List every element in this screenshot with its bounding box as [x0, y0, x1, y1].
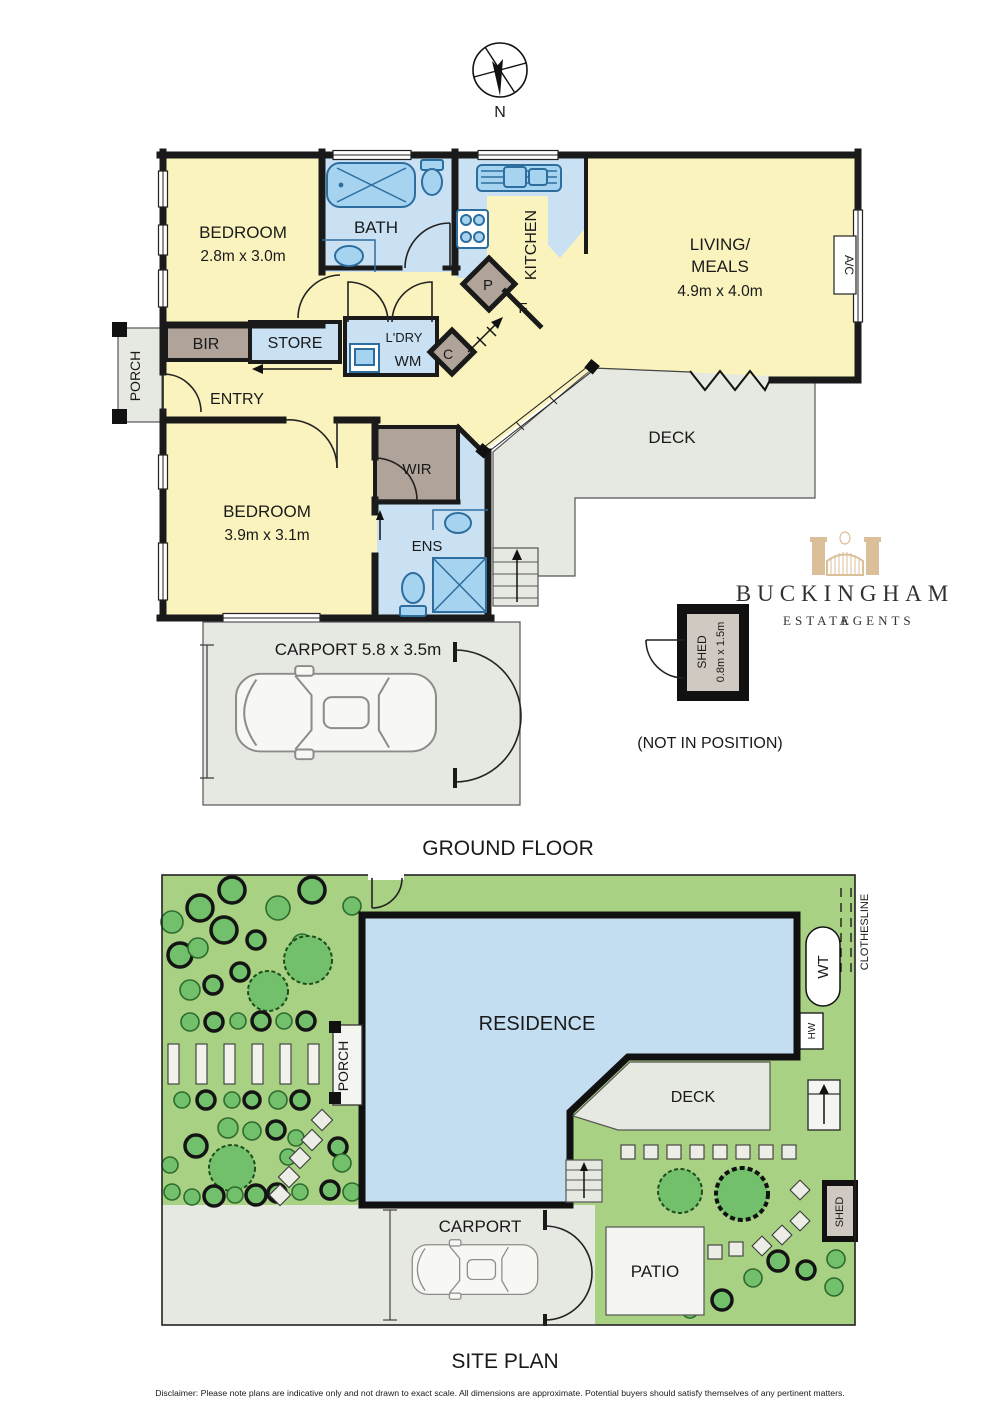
bir-label: BIR [193, 336, 220, 353]
hot-water-unit: HW [800, 1013, 823, 1049]
living-dims: 4.9m x 4.0m [677, 283, 762, 300]
compass-needle [492, 59, 503, 96]
wm-label: WM [395, 353, 422, 370]
patio-label: PATIO [631, 1262, 680, 1281]
washing-machine [350, 344, 379, 372]
shed-ground-label: SHED [695, 635, 709, 669]
kitchen-sink [477, 165, 561, 191]
deck-stairs [493, 548, 538, 606]
carport-ground-label: CARPORT 5.8 x 3.5m [275, 640, 442, 659]
floorplan-page: N PORCH [0, 0, 1000, 1415]
ac-unit: A/C [834, 236, 856, 294]
hw-label: HW [807, 1022, 818, 1039]
carport-ground: CARPORT 5.8 x 3.5m [200, 622, 521, 805]
shed-ground-dims: 0.8m x 1.5m [715, 622, 727, 683]
ac-label: A/C [842, 255, 856, 275]
pantry-label: P [483, 277, 493, 294]
water-tank: WT [806, 927, 840, 1006]
ground-floor-title: GROUND FLOOR [422, 837, 594, 860]
ground-floor-plan: PORCH [112, 151, 954, 861]
deck-site-label: DECK [671, 1089, 716, 1106]
shed-site: SHED [822, 1180, 858, 1242]
shed-site-label: SHED [834, 1197, 846, 1228]
porch-site-label: PORCH [335, 1041, 351, 1092]
clothesline-label: CLOTHESLINE [859, 894, 871, 970]
cupboard-label: C [443, 346, 453, 362]
kitchen-label: KITCHEN [523, 210, 540, 280]
bathtub [327, 163, 415, 207]
patio: PATIO [606, 1227, 704, 1315]
agency-name-watermark: BUCKINGHAM [736, 581, 954, 606]
ens-label: ENS [412, 538, 443, 555]
disclaimer-text: Disclaimer: Please note plans are indica… [155, 1388, 845, 1398]
gate-logo-icon [810, 532, 881, 575]
bath-label: BATH [354, 218, 398, 237]
compass: N [473, 43, 527, 121]
site-plan-title: SITE PLAN [451, 1350, 558, 1373]
deck-site-stairs [566, 1160, 602, 1202]
deck-label: DECK [648, 428, 696, 447]
bedroom1-dims: 2.8m x 3.0m [200, 248, 285, 265]
garden-steps [808, 1080, 840, 1130]
living-label-2: MEALS [691, 257, 749, 276]
shed-ground: SHED 0.8m x 1.5m [646, 604, 749, 701]
carport-site-label: CARPORT [439, 1217, 522, 1236]
compass-north-label: N [494, 104, 506, 121]
stove-cooktop [457, 210, 488, 248]
porch-ground-label: PORCH [127, 351, 143, 402]
entry-label: ENTRY [210, 391, 264, 408]
not-in-position-label: (NOT IN POSITION) [637, 735, 782, 752]
ldry-label: L'DRY [386, 330, 423, 345]
porch-site: PORCH [329, 1021, 362, 1105]
toilet-bath [421, 160, 443, 195]
toilet-ens [400, 573, 426, 616]
agency-agents-label: AGENTS [839, 613, 914, 628]
porch-ground: PORCH [112, 322, 162, 424]
floorplan-drawing: N PORCH [0, 0, 1000, 1415]
residence-label: RESIDENCE [479, 1013, 596, 1035]
wir-label: WIR [402, 461, 431, 478]
wt-label: WT [815, 955, 832, 978]
bedroom2-label: BEDROOM [223, 502, 311, 521]
driveway [162, 1205, 390, 1325]
bedroom1-label: BEDROOM [199, 223, 287, 242]
bedroom2-dims: 3.9m x 3.1m [224, 527, 309, 544]
site-plan: RESIDENCE PORCH WT HW CLOTHESLINE DECK [161, 871, 871, 1373]
store-label: STORE [268, 335, 323, 352]
agency-watermark: BUCKINGHAM ESTATE AGENTS [736, 532, 954, 628]
shower-ens [433, 558, 486, 612]
living-label-1: LIVING/ [690, 235, 751, 254]
fridge-label: F [518, 300, 527, 317]
